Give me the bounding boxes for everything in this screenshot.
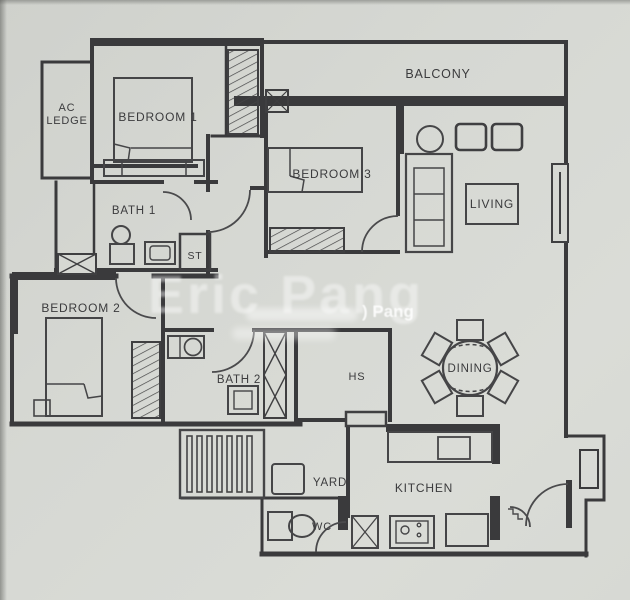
entrance-door-arc — [526, 484, 568, 526]
room-label-bedroom2: BEDROOM 2 — [41, 301, 120, 315]
room-label-store: ST — [187, 250, 202, 262]
bedroom2-door-arc — [116, 278, 156, 318]
room-label-bedroom1: BEDROOM 1 — [118, 110, 197, 124]
kitchen-right-counter — [446, 514, 488, 546]
bath1-door-arc — [163, 192, 191, 220]
bath1-sink — [145, 242, 175, 264]
room-label-yard: YARD — [313, 477, 347, 489]
bedroom3-door-arc — [362, 216, 398, 252]
floor-plan-photo: BALCONY AC LEDGE BEDROOM 1 BEDROOM 3 LIV… — [0, 0, 630, 600]
duct-shaft — [264, 332, 286, 418]
dining-chair — [422, 371, 452, 404]
washing-machine — [272, 464, 304, 494]
bath1-toilet — [110, 226, 134, 264]
room-label-bath1: BATH 1 — [112, 205, 156, 217]
room-label-ac-ledge-1: AC — [59, 102, 76, 114]
room-label-kitchen: KITCHEN — [395, 481, 453, 495]
dining-chair — [488, 371, 518, 404]
living-window — [552, 164, 568, 242]
living-armchairs — [456, 124, 522, 150]
wc-toilet — [268, 512, 315, 540]
kitchen-stove — [390, 516, 434, 548]
yard-laundry-rack — [180, 430, 264, 498]
bedroom3-wardrobe — [270, 228, 344, 252]
kitchen-top-counter — [388, 432, 492, 462]
kitchen-sink — [352, 516, 378, 548]
dining-chair — [488, 333, 518, 366]
room-label-ac-ledge-2: LEDGE — [46, 115, 87, 127]
hs-door-threshold — [346, 412, 386, 426]
room-label-living: LIVING — [470, 197, 514, 211]
watermark-smudge — [232, 327, 336, 340]
hallway-door-arc — [208, 190, 250, 232]
room-label-bedroom3: BEDROOM 3 — [292, 167, 371, 181]
bedroom2-wardrobe — [132, 342, 160, 418]
floor-plan-drawing: BALCONY AC LEDGE BEDROOM 1 BEDROOM 3 LIV… — [0, 0, 630, 600]
bedroom2-bed — [34, 318, 102, 416]
walls — [12, 42, 604, 556]
bath2-toilet — [228, 386, 258, 414]
bath2-sink — [168, 336, 204, 358]
sofa — [406, 154, 452, 252]
dining-chair — [422, 333, 452, 366]
bath1-louvre-window — [58, 254, 96, 274]
bedroom1-bed — [104, 78, 204, 176]
watermark-smudge — [246, 308, 358, 321]
room-label-hs: HS — [349, 371, 366, 383]
room-label-balcony: BALCONY — [405, 67, 470, 81]
bedroom1-wardrobe — [228, 50, 258, 134]
room-label-dining: DINING — [447, 363, 492, 375]
room-label-wc: WC — [312, 521, 332, 533]
living-side-table — [417, 126, 443, 152]
room-label-bath2: BATH 2 — [217, 374, 261, 386]
dining-chair — [457, 320, 483, 340]
dining-chair — [457, 396, 483, 416]
